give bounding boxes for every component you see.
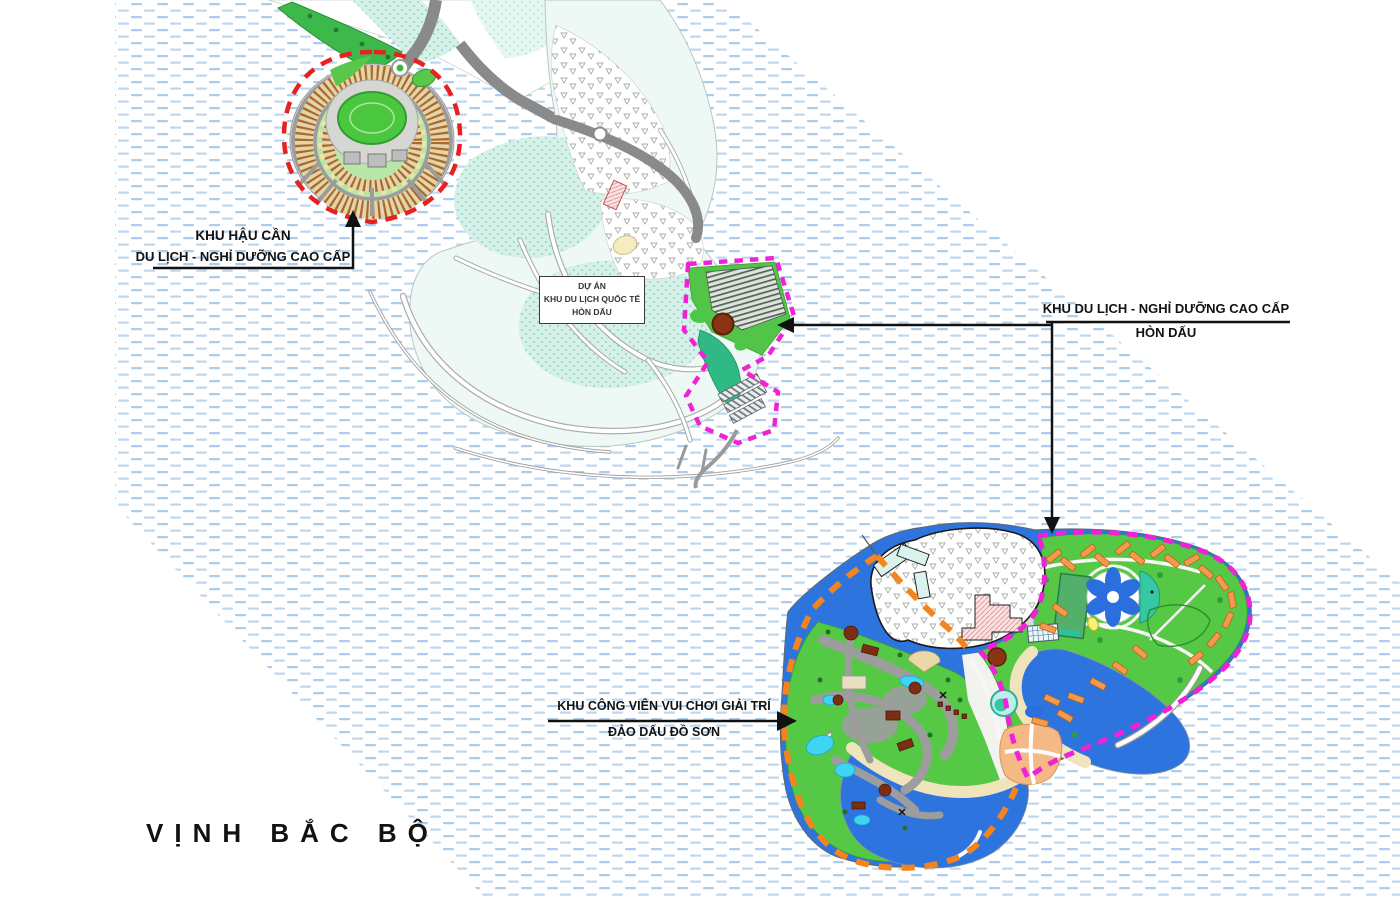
project-box-line2: KHU DU LỊCH QUỐC TẾ [542,293,642,306]
project-box-line1: DỰ ÁN [542,280,642,293]
master-plan-map: KHU HẬU CẦN DU LỊCH - NGHỈ DƯỠNG CAO CẤP… [0,0,1400,900]
lighthouse-structure [713,314,734,335]
label-amusement-zone: KHU CÔNG VIÊN VUI CHƠI GIẢI TRÍ ĐẢO DẤU … [538,699,790,740]
label-resort-zone: KHU DU LỊCH - NGHỈ DƯỠNG CAO CẤP HÒN DẤU [1040,301,1292,342]
label-resort-line1: KHU DU LỊCH - NGHỈ DƯỠNG CAO CẤP [1040,301,1292,317]
roundabout [594,128,607,141]
label-sea-name: VỊNH BẮC BỘ [146,817,439,850]
central-green-oval [338,92,406,144]
label-logistics-line1: KHU HẬU CẦN [128,228,358,245]
label-logistics-line2: DU LỊCH - NGHỈ DƯỠNG CAO CẤP [128,249,358,265]
label-amusement-line1: KHU CÔNG VIÊN VUI CHƠI GIẢI TRÍ [538,699,790,715]
label-logistics-zone: KHU HẬU CẦN DU LỊCH - NGHỈ DƯỠNG CAO CẤP [128,228,358,265]
label-project-box: DỰ ÁN KHU DU LỊCH QUỐC TẾ HÒN DẤU [539,276,645,324]
label-amusement-line2: ĐẢO DẤU ĐỒ SƠN [538,725,790,741]
label-resort-line2: HÒN DẤU [1040,325,1292,341]
map-canvas [0,0,1400,900]
project-box-line3: HÒN DẤU [542,306,642,319]
